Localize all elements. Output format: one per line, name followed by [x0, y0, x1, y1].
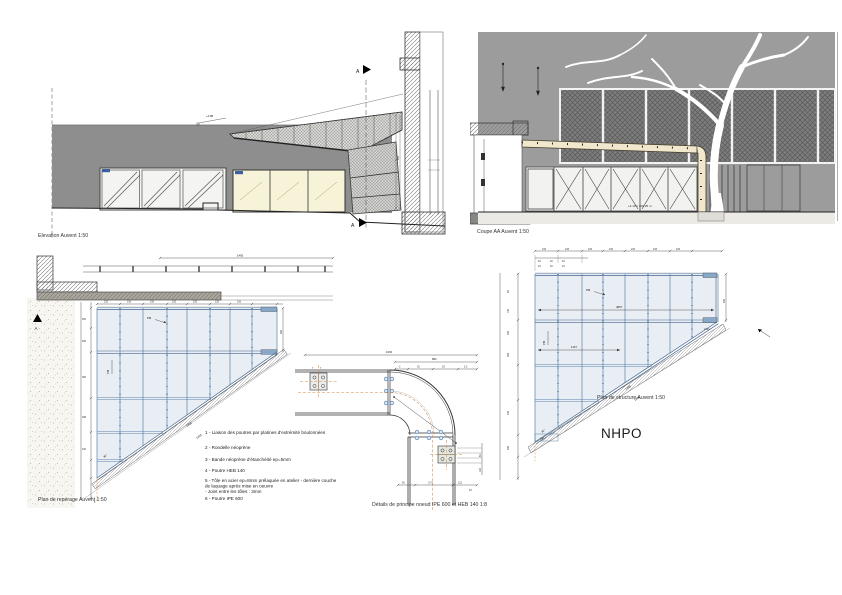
svg-text:40: 40	[550, 265, 553, 268]
svg-text:233: 233	[150, 301, 155, 304]
svg-text:455: 455	[82, 340, 87, 343]
coupe-x-panels	[526, 167, 697, 211]
elevation-garage-doors	[100, 168, 226, 210]
door-tag	[102, 169, 110, 172]
svg-text:PM: PM	[542, 340, 546, 345]
level-label: +4.88	[206, 114, 214, 118]
dim-label: 940	[397, 155, 400, 160]
legend: 1 - Liaison des poutres par platines d'e…	[203, 426, 403, 510]
coupe-caption: Coupe AA Auvent 1:50	[477, 229, 529, 235]
svg-text:1167: 1167	[571, 345, 577, 349]
svg-text:233: 233	[676, 248, 681, 251]
svg-text:140: 140	[540, 438, 545, 441]
svg-text:7: 7	[320, 367, 322, 370]
svg-text:233: 233	[565, 248, 570, 251]
svg-text:37.5: 37.5	[428, 482, 433, 485]
svg-text:233: 233	[631, 248, 636, 251]
svg-text:155: 155	[507, 308, 510, 313]
svg-text:25: 25	[417, 366, 420, 369]
svg-text:A: A	[35, 326, 38, 331]
svg-text:7: 7	[312, 367, 314, 370]
svg-text:40: 40	[550, 260, 553, 263]
elevation-mesh-panel	[348, 142, 401, 214]
svg-text:882: 882	[432, 357, 437, 361]
coupe-left-wall	[470, 121, 530, 224]
legend-item: 4 - Poutre HEB 140	[205, 468, 245, 473]
svg-text:303: 303	[507, 330, 510, 335]
svg-text:233: 233	[172, 301, 177, 304]
legend-item: 3 - Bande néoprène d'étanchéité ep=5mm	[205, 457, 291, 462]
svg-text:PM: PM	[106, 369, 110, 374]
svg-text:233: 233	[588, 248, 593, 251]
svg-text:64: 64	[469, 489, 472, 492]
coupe-dark-panels	[560, 89, 835, 163]
coupe-level-label: +4.10 = 109.25 m	[628, 204, 652, 208]
pointer-arrow-icon	[758, 329, 762, 332]
svg-text:2193: 2193	[704, 328, 710, 331]
svg-text:150: 150	[82, 448, 87, 451]
svg-text:233: 233	[215, 301, 220, 304]
legend-item: 2 - Rondelle néoprène	[205, 445, 251, 450]
elevation-level-marker: +4.88	[197, 114, 226, 125]
drawing-sheet: A A +4.88 940 Elevation Auvent 1:50	[0, 0, 842, 595]
svg-text:1060: 1060	[386, 350, 393, 354]
svg-text:40: 40	[562, 260, 565, 263]
svg-text:500: 500	[280, 329, 283, 334]
svg-text:25: 25	[442, 366, 445, 369]
svg-text:4867: 4867	[616, 305, 623, 309]
elevation-drawing: A A +4.88 940 Elevation Auvent 1:50	[30, 10, 460, 248]
coupe-ground	[478, 212, 835, 224]
plan-reperage-left-dims: 500 455 350 298 150	[81, 302, 92, 500]
svg-text:PM: PM	[147, 316, 152, 320]
plan-structure-drawing: 233 233 233 233 233 233 233 40 40 40 40 …	[478, 245, 798, 495]
svg-text:350: 350	[507, 352, 510, 357]
elevation-caption: Elevation Auvent 1:50	[38, 233, 88, 239]
window-tag	[235, 171, 243, 174]
section-arrow-top-icon	[363, 65, 371, 74]
svg-text:3: 3	[399, 366, 401, 369]
svg-text:122: 122	[458, 482, 463, 485]
svg-text:1425: 1425	[195, 433, 203, 440]
svg-text:298: 298	[82, 416, 87, 419]
coupe-drawing: +4.10 = 109.25 m Coupe AA Auvent 1:50	[470, 25, 842, 240]
svg-text:500: 500	[723, 298, 726, 303]
svg-text:233: 233	[193, 301, 198, 304]
svg-text:233: 233	[237, 301, 242, 304]
legend-item: - Joint entre les tôles : 3mm	[205, 489, 262, 494]
svg-text:50: 50	[507, 290, 510, 293]
svg-text:233: 233	[127, 301, 132, 304]
elevation-facade	[52, 88, 392, 238]
plan-structure-left-dims: 50 155 303 350 455 500	[500, 273, 519, 480]
brand-text: NHPO	[601, 426, 642, 441]
detail-top-dims: 1060 882 3 25 25 5.2 7 7	[304, 350, 478, 370]
svg-text:40: 40	[562, 265, 565, 268]
plan-reperage-caption: Plan de repérage Auvent 1:50	[38, 497, 107, 503]
section-marker-bottom: A	[351, 223, 355, 229]
svg-text:1465: 1465	[237, 254, 244, 258]
svg-text:233: 233	[542, 248, 547, 251]
legend-item: 5 - Tôle en acier ep=8mm prélaquée en at…	[205, 478, 337, 483]
svg-text:233: 233	[653, 248, 658, 251]
svg-text:40: 40	[538, 260, 541, 263]
elevation-right-wall	[400, 32, 445, 234]
svg-text:233: 233	[104, 301, 109, 304]
svg-text:500: 500	[82, 318, 87, 321]
svg-text:5.2: 5.2	[464, 366, 468, 369]
legend-item: de laquage après mise en oeuvre	[205, 484, 274, 489]
plan-structure-caption: Plan de structure Auvent 1:50	[597, 395, 665, 401]
svg-text:233: 233	[609, 248, 614, 251]
svg-text:40: 40	[538, 265, 541, 268]
svg-text:455: 455	[507, 410, 510, 415]
legend-item: 6 - Poutre IPE 600	[205, 496, 243, 501]
plan-reperage-wall	[37, 256, 333, 300]
beam-end-cap	[703, 318, 717, 323]
svg-text:PM: PM	[586, 288, 591, 292]
plan-structure-top-dims: 233 233 233 233 233 233 233 40 40 40 40 …	[534, 248, 723, 271]
elevation-glazed-window	[233, 170, 345, 212]
beam-end-cap	[261, 307, 277, 312]
section-marker-top: A	[356, 69, 360, 75]
svg-text:500: 500	[507, 445, 510, 450]
beam-end-cap	[703, 273, 717, 278]
legend-item: 1 - Liaison des poutres par platines d'e…	[205, 430, 326, 435]
svg-text:350: 350	[82, 376, 87, 379]
